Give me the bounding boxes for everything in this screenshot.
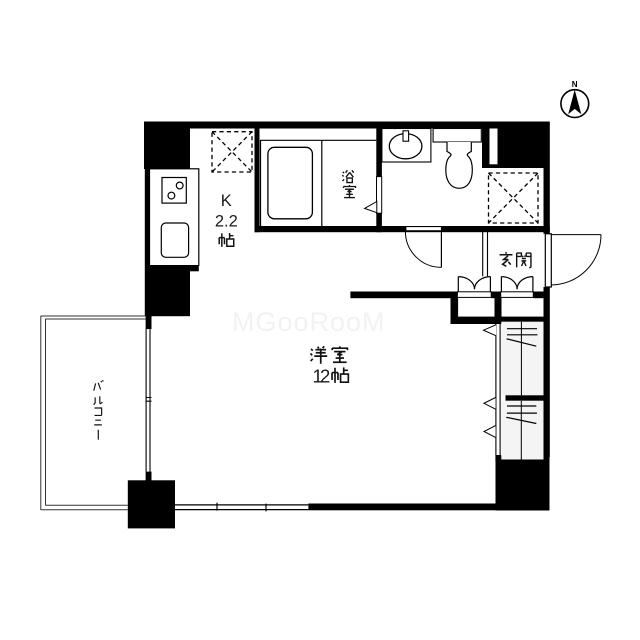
svg-text:N: N bbox=[572, 80, 578, 89]
svg-text:K: K bbox=[221, 192, 232, 210]
svg-text:12: 12 bbox=[313, 365, 330, 386]
svg-text:MGooRooM: MGooRooM bbox=[232, 307, 386, 337]
svg-text:2.2: 2.2 bbox=[215, 212, 238, 230]
